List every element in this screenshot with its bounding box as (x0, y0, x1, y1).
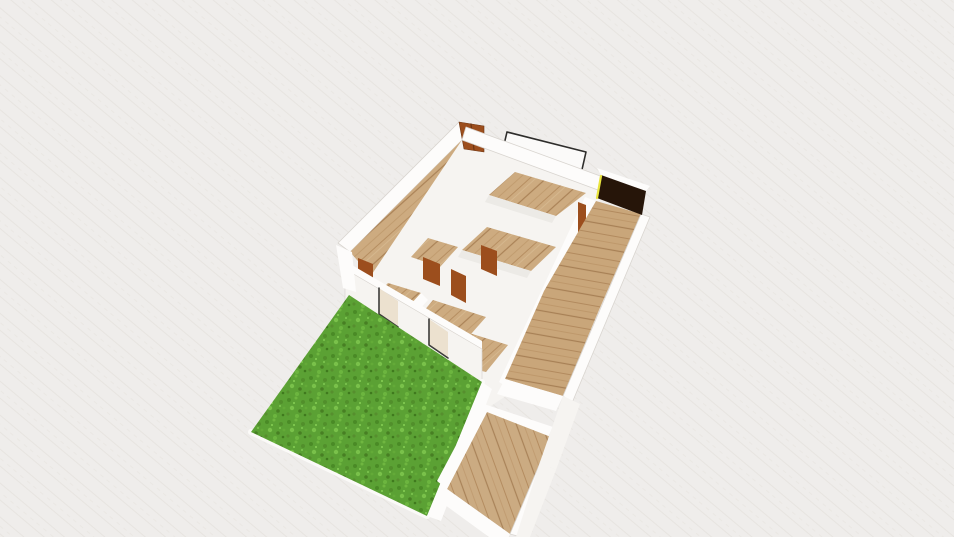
floorplan-3d-viewport[interactable] (0, 0, 954, 537)
scene-canvas (0, 0, 954, 537)
